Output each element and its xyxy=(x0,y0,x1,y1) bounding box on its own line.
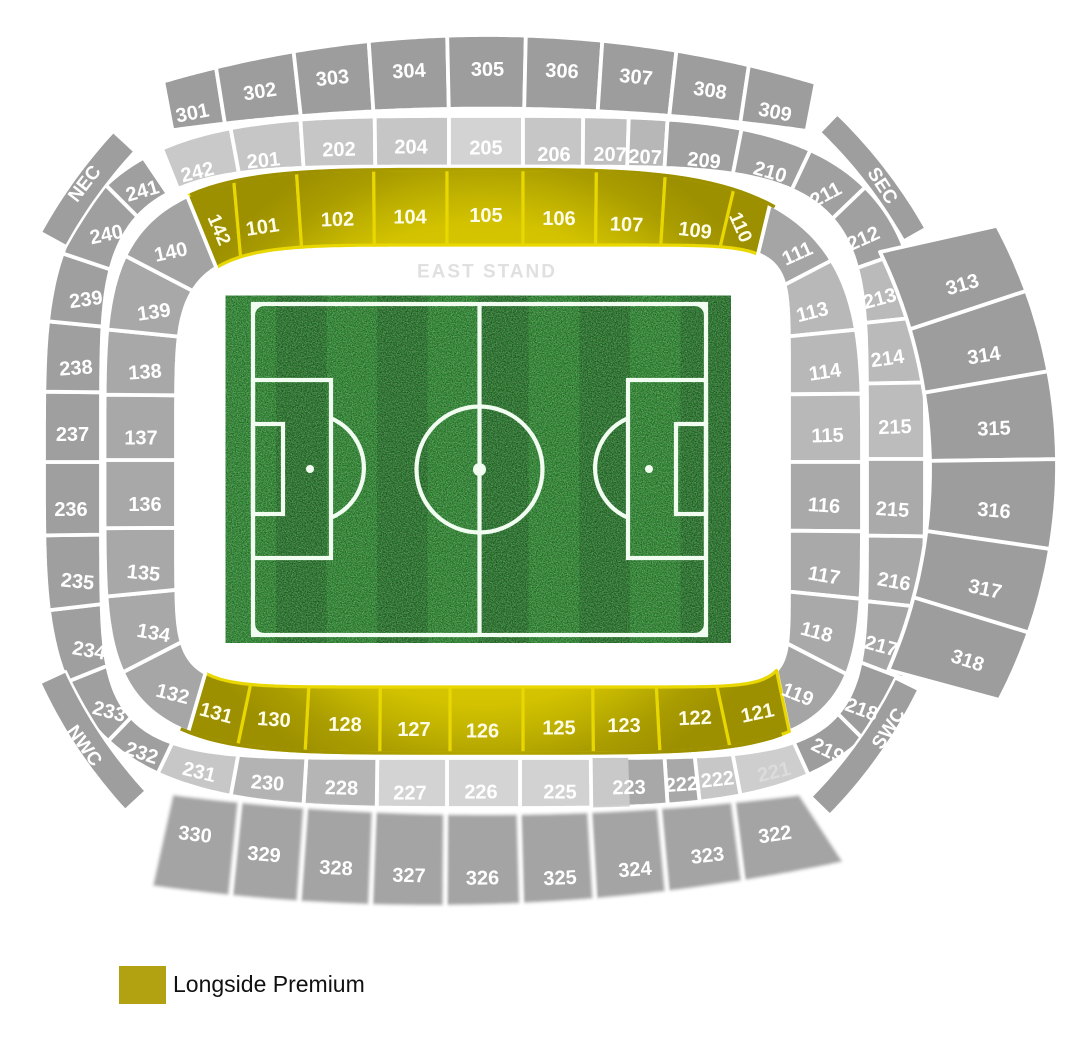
svg-text:225: 225 xyxy=(543,781,576,803)
svg-text:227: 227 xyxy=(393,782,426,804)
svg-text:115: 115 xyxy=(811,424,844,447)
svg-text:236: 236 xyxy=(54,499,87,521)
svg-text:306: 306 xyxy=(545,60,579,84)
svg-text:137: 137 xyxy=(124,428,157,450)
svg-text:228: 228 xyxy=(325,777,359,800)
svg-text:316: 316 xyxy=(976,499,1011,524)
svg-text:304: 304 xyxy=(392,60,427,84)
svg-text:102: 102 xyxy=(320,208,354,231)
svg-text:315: 315 xyxy=(977,417,1011,440)
svg-text:135: 135 xyxy=(126,561,161,586)
svg-text:230: 230 xyxy=(250,771,285,796)
svg-text:123: 123 xyxy=(607,715,641,737)
svg-text:125: 125 xyxy=(542,718,575,740)
svg-text:128: 128 xyxy=(328,714,362,736)
svg-text:122: 122 xyxy=(678,707,712,730)
svg-text:322: 322 xyxy=(757,822,793,849)
svg-text:329: 329 xyxy=(246,843,281,868)
svg-text:109: 109 xyxy=(677,218,713,244)
svg-text:327: 327 xyxy=(392,865,426,888)
svg-text:126: 126 xyxy=(466,721,499,743)
svg-text:330: 330 xyxy=(177,822,213,848)
svg-text:237: 237 xyxy=(56,424,89,446)
svg-text:130: 130 xyxy=(257,708,292,732)
svg-text:114: 114 xyxy=(807,359,843,385)
svg-text:223: 223 xyxy=(612,777,646,800)
svg-text:205: 205 xyxy=(469,138,502,160)
svg-text:222: 222 xyxy=(700,767,736,793)
svg-text:106: 106 xyxy=(542,208,576,230)
svg-text:206: 206 xyxy=(537,144,570,166)
svg-text:305: 305 xyxy=(471,59,504,81)
svg-text:138: 138 xyxy=(128,360,163,384)
svg-text:202: 202 xyxy=(322,139,356,162)
svg-text:235: 235 xyxy=(60,569,95,594)
svg-text:105: 105 xyxy=(469,205,502,227)
svg-text:323: 323 xyxy=(690,843,726,869)
svg-text:207: 207 xyxy=(628,146,662,169)
svg-text:101: 101 xyxy=(244,214,280,241)
svg-text:207: 207 xyxy=(593,144,627,167)
svg-text:209: 209 xyxy=(686,148,722,173)
svg-text:EAST STAND: EAST STAND xyxy=(417,262,557,283)
svg-text:201: 201 xyxy=(246,148,281,173)
svg-text:303: 303 xyxy=(315,66,350,91)
svg-text:326: 326 xyxy=(466,867,500,889)
svg-text:239: 239 xyxy=(68,287,104,313)
svg-text:204: 204 xyxy=(394,136,428,158)
svg-text:Longside Premium: Longside Premium xyxy=(173,971,365,997)
svg-text:238: 238 xyxy=(59,356,94,380)
svg-text:226: 226 xyxy=(464,782,497,804)
svg-text:136: 136 xyxy=(128,494,161,516)
svg-text:127: 127 xyxy=(397,719,430,741)
svg-text:307: 307 xyxy=(618,65,653,90)
svg-text:324: 324 xyxy=(618,858,654,883)
svg-text:222: 222 xyxy=(664,773,699,797)
svg-text:325: 325 xyxy=(543,867,577,890)
svg-text:107: 107 xyxy=(609,213,643,236)
svg-text:215: 215 xyxy=(878,416,912,439)
svg-text:328: 328 xyxy=(319,857,354,881)
svg-text:215: 215 xyxy=(875,498,910,522)
svg-text:139: 139 xyxy=(136,299,172,325)
svg-text:116: 116 xyxy=(807,494,841,518)
svg-text:104: 104 xyxy=(393,206,427,228)
